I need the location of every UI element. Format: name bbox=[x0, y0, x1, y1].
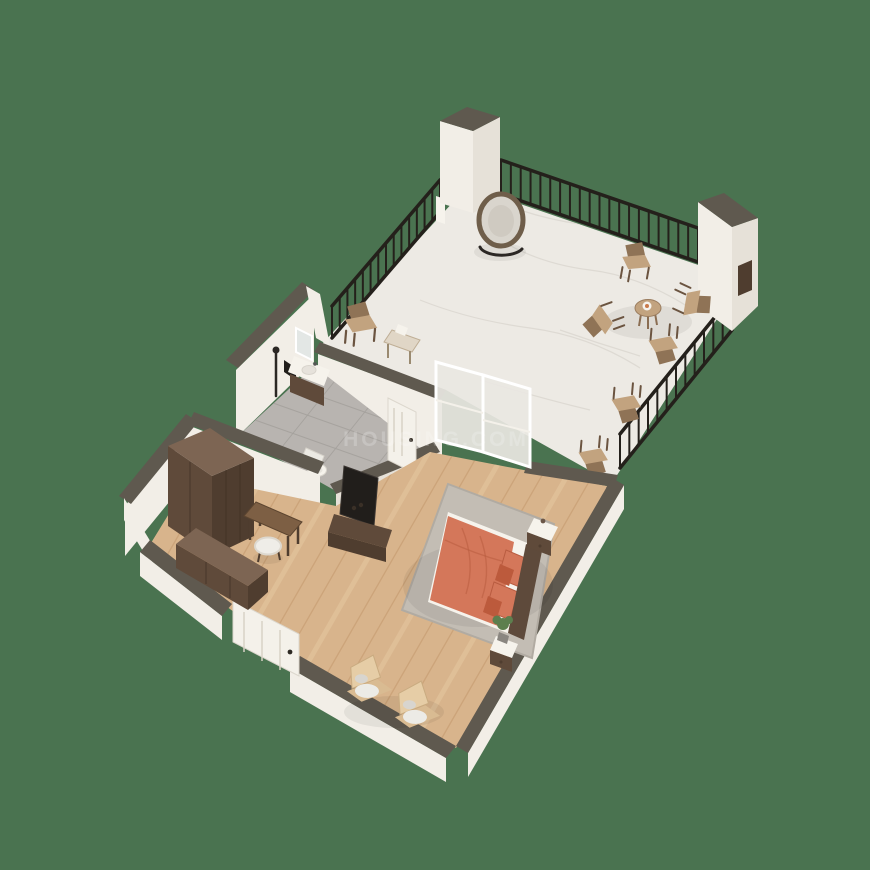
pillar-vent bbox=[738, 260, 752, 296]
floor-plan-render: HOUSING.COM bbox=[0, 0, 870, 870]
watermark: HOUSING.COM bbox=[343, 428, 529, 451]
faucet bbox=[313, 362, 317, 366]
decor-item bbox=[541, 519, 546, 524]
papasan-chair bbox=[474, 194, 526, 261]
fluffy-stool bbox=[253, 538, 283, 565]
door-handle bbox=[288, 650, 293, 655]
food bbox=[645, 304, 649, 308]
floor-plan-svg: HOUSING.COM bbox=[0, 0, 870, 870]
coffee-table bbox=[635, 300, 661, 330]
